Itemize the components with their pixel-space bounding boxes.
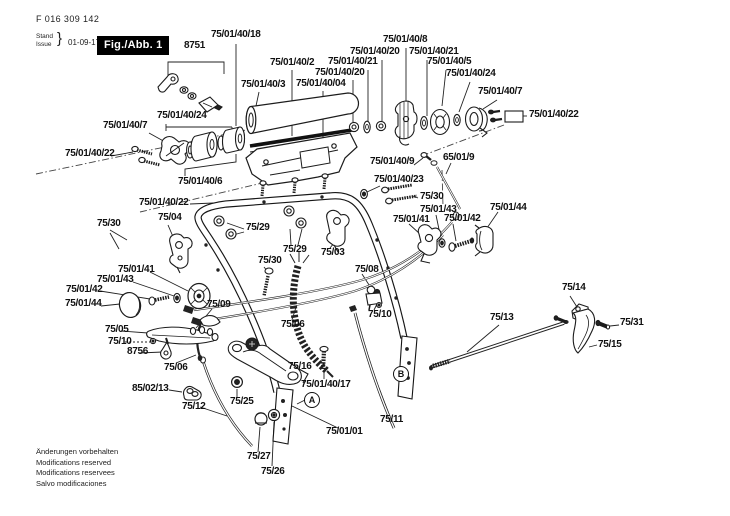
part-label-75-01-40-04: 75/01/40/04: [296, 79, 346, 89]
left-roller-assembly: [132, 127, 245, 165]
issue-label: Issue: [36, 41, 53, 49]
part-label-75-01-40-23: 75/01/40/23: [374, 175, 424, 185]
part-label-75-12: 75/12: [182, 402, 206, 412]
part-label-75-08: 75/08: [355, 265, 379, 275]
part-label-75-27: 75/27: [247, 452, 271, 462]
part-label-75-30: 75/30: [97, 219, 121, 229]
notice-line-fr: Modifications reservees: [36, 468, 118, 479]
part-label-75-06: 75/06: [281, 320, 305, 330]
part-label-75-01-40-20: 75/01/40/20: [350, 47, 400, 57]
part-label-75-01-42: 75/01/42: [444, 214, 481, 224]
front-wheel-assembly: [349, 101, 523, 145]
part-label-75-30: 75/30: [420, 192, 444, 202]
part-label-8756: 8756: [127, 347, 148, 357]
parts-diagram-page: F 016 309 142 Stand Issue } 01-09-17 Fig…: [0, 0, 730, 516]
part-label-75-01-40-24: 75/01/40/24: [446, 69, 496, 79]
document-number: F 016 309 142: [36, 14, 99, 24]
part-label-75-14: 75/14: [562, 283, 586, 293]
part-label-75-26: 75/26: [261, 467, 285, 477]
notice-line-en: Modifications reserved: [36, 458, 118, 469]
key-assembly: [158, 74, 222, 112]
stand-label: Stand: [36, 33, 53, 41]
part-label-65-01-9: 65/01/9: [443, 153, 474, 163]
part-label-75-01-41: 75/01/41: [393, 215, 430, 225]
part-label-75-05: 75/05: [105, 325, 129, 335]
part-label-75-01-40-20: 75/01/40/20: [315, 68, 365, 78]
part-label-75-01-40-22: 75/01/40/22: [139, 198, 189, 208]
part-label-75-10: 75/10: [368, 310, 392, 320]
part-label-75-01-40-22: 75/01/40/22: [65, 149, 115, 159]
part-label-75-01-40-9: 75/01/40/9: [370, 157, 414, 167]
part-label-75-25: 75/25: [230, 397, 254, 407]
part-label-75-11: 75/11: [380, 415, 403, 425]
part-label-75-01-40-24: 75/01/40/24: [157, 111, 207, 121]
brace-glyph: }: [57, 30, 62, 47]
part-label-75-01-40-21: 75/01/40/21: [328, 57, 378, 67]
part-label-75-30: 75/30: [258, 256, 282, 266]
part-label-75-01-40-7: 75/01/40/7: [478, 87, 522, 97]
part-label-75-31: 75/31: [620, 318, 644, 328]
part-label-75-01-42: 75/01/42: [66, 285, 103, 295]
part-label-75-15: 75/15: [598, 340, 622, 350]
roller-tube-assembly: [246, 93, 359, 196]
stand-issue-label: Stand Issue: [36, 33, 53, 48]
part-label-75-09: 75/09: [207, 300, 231, 310]
notice-line-de: Änderungen vorbehalten: [36, 447, 118, 458]
part-label-75-16: 75/16: [288, 362, 312, 372]
part-label-75-01-40-7: 75/01/40/7: [103, 121, 147, 131]
part-label-75-04: 75/04: [158, 213, 182, 223]
part-label-75-01-40-6: 75/01/40/6: [178, 177, 222, 187]
part-label-85-02-13: 85/02/13: [132, 384, 169, 394]
part-label-75-01-40-2: 75/01/40/2: [270, 58, 314, 68]
part-label-75-01-01: 75/01/01: [326, 427, 363, 437]
diagram-line-art: [0, 0, 730, 516]
view-marker-A: A: [304, 392, 320, 408]
part-label-75-01-40-18: 75/01/40/18: [211, 30, 261, 40]
part-label-75-01-40-3: 75/01/40/3: [241, 80, 285, 90]
view-marker-B: B: [393, 366, 409, 382]
notice-line-es: Salvo modificaciones: [36, 479, 118, 490]
modifications-notice: Änderungen vorbehalten Modifications res…: [36, 447, 118, 489]
part-label-75-01-40-17: 75/01/40/17: [301, 380, 351, 390]
part-label-75-01-44: 75/01/44: [490, 203, 527, 213]
part-label-75-29: 75/29: [246, 223, 270, 233]
part-label-75-06: 75/06: [164, 363, 188, 373]
figure-label: Fig./Abb. 1: [97, 36, 169, 55]
part-label-75-03: 75/03: [321, 248, 345, 258]
part-label-75-29: 75/29: [283, 245, 307, 255]
part-label-75-01-44: 75/01/44: [65, 299, 102, 309]
part-label-75-13: 75/13: [490, 313, 514, 323]
part-label-8751: 8751: [184, 41, 205, 51]
part-label-75-01-40-5: 75/01/40/5: [427, 57, 471, 67]
part-label-75-01-40-22: 75/01/40/22: [529, 110, 579, 120]
issue-date: 01-09-17: [68, 38, 100, 47]
part-label-75-01-40-8: 75/01/40/8: [383, 35, 427, 45]
